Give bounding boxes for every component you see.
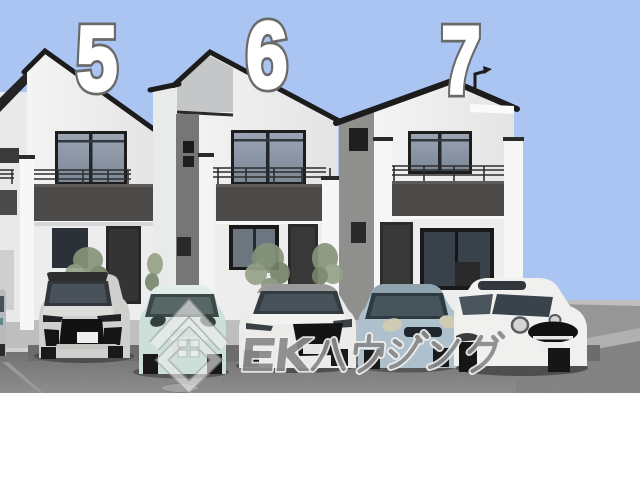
svg-text:5: 5: [77, 7, 118, 110]
svg-text:7: 7: [441, 7, 481, 114]
svg-text:6: 6: [246, 3, 287, 107]
